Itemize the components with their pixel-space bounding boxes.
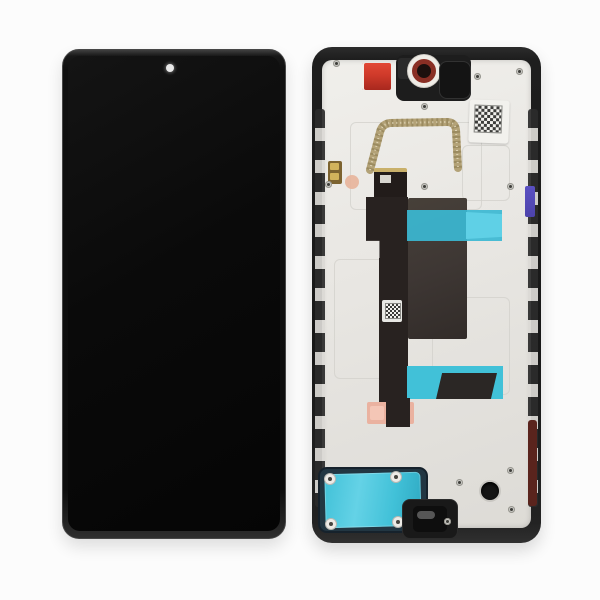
flex-connector — [374, 168, 407, 201]
dark-tape-patch — [436, 373, 497, 399]
speaker-screw — [326, 519, 336, 529]
usb-port-icon — [417, 511, 435, 519]
screw — [456, 479, 463, 486]
flex-tail-ribbon — [386, 398, 410, 427]
adhesive-dot — [345, 175, 359, 189]
punch-hole-camera-icon — [166, 64, 174, 72]
flex-tail-pad — [370, 406, 384, 420]
antenna-notches-left — [315, 109, 325, 507]
screw — [507, 183, 514, 190]
screw — [474, 73, 481, 80]
qr-code-icon — [385, 303, 401, 319]
screw — [507, 467, 514, 474]
red-warranty-sticker — [362, 63, 391, 90]
screw — [444, 518, 451, 525]
phone-front-assembly — [62, 49, 286, 539]
screw — [421, 183, 428, 190]
blue-side-clip — [525, 186, 535, 217]
flex-qr-sticker — [382, 300, 402, 322]
screw — [516, 68, 523, 75]
port-cavity — [413, 506, 447, 532]
maroon-side-strip — [528, 420, 537, 506]
product-photo — [0, 0, 600, 600]
front-camera-ring — [412, 59, 436, 83]
speaker-screw — [391, 472, 401, 482]
flex-cable-ribbon — [379, 258, 408, 405]
phone-back-frame-assembly — [312, 47, 541, 543]
screw — [508, 506, 515, 513]
phone-screen — [68, 56, 280, 531]
cyan-tape-upper-light — [466, 212, 502, 239]
screw — [333, 60, 340, 67]
connector-label — [380, 175, 391, 183]
screw — [421, 103, 428, 110]
camera-hole — [481, 482, 499, 500]
screw — [325, 181, 332, 188]
speaker-screw — [325, 474, 335, 484]
camera-module-block — [439, 61, 471, 99]
gold-antenna-ribbon — [338, 98, 478, 190]
